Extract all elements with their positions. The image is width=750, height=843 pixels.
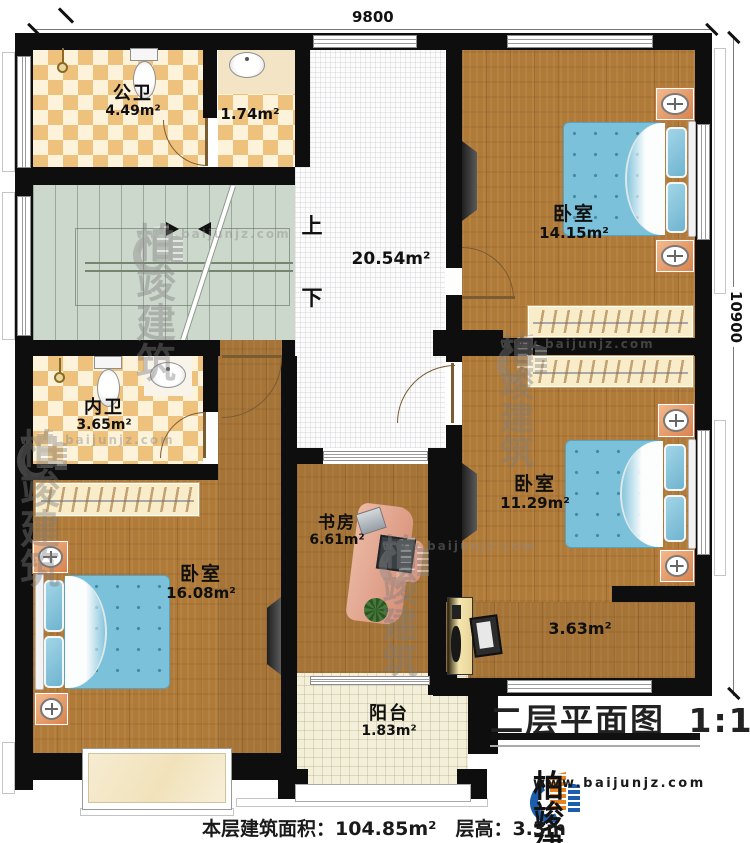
room-name: 书房 <box>309 514 364 533</box>
dimension-line-right <box>733 36 734 696</box>
watermark-name: 柏竣建筑 <box>500 334 538 470</box>
toilet-icon <box>130 48 158 61</box>
room-label-bedroom-right: 卧室 11.29m² <box>500 474 570 512</box>
room-label-public-bath: 公卫 4.49m² <box>105 84 160 120</box>
stairs-down-label: 下 <box>302 282 323 312</box>
dimension-line-top <box>33 29 712 30</box>
dimension-width-label: 9800 <box>348 8 398 26</box>
wall <box>612 586 695 602</box>
watermark-name: 柏竣建筑 <box>382 536 422 680</box>
watermark-url: www.baijunjz.com <box>136 227 291 241</box>
stairs-up-label: 上 <box>302 210 323 240</box>
window-sill <box>2 52 15 172</box>
nightstand <box>660 550 694 582</box>
wall <box>33 167 295 185</box>
room-label-bedroom-left: 卧室 16.08m² <box>166 564 236 602</box>
bed-pillow <box>664 495 686 542</box>
bed-headboard <box>688 439 696 549</box>
room-label-wash: 1.74m² <box>220 106 279 123</box>
room-label-hall: 20.54m² <box>352 250 431 269</box>
room-name: 卧室 <box>539 204 609 225</box>
window <box>507 680 652 693</box>
bed-pillow <box>666 127 687 178</box>
nightstand <box>656 88 694 120</box>
bay-window-seat <box>88 753 226 803</box>
window <box>697 124 710 240</box>
ceiling-light-icon <box>57 62 68 73</box>
door-leaf <box>205 118 208 166</box>
bed-headboard <box>688 121 696 237</box>
wardrobe <box>528 356 693 387</box>
room-name: 公卫 <box>105 84 160 104</box>
dimension-tick <box>727 31 740 44</box>
room-label-study: 书房 6.61m² <box>309 514 364 549</box>
title-underline-thin <box>490 745 700 747</box>
dimension-tick <box>58 7 74 23</box>
door-leaf <box>222 355 282 358</box>
window <box>313 35 417 48</box>
nightstand <box>658 404 694 437</box>
room-label-corridor: 3.63m² <box>548 620 611 638</box>
room-area: 1.74m² <box>220 106 279 123</box>
wardrobe <box>528 306 693 337</box>
speaker-icon <box>451 626 461 662</box>
stair-rail <box>85 262 293 272</box>
toilet-icon <box>94 356 122 369</box>
room-name: 卧室 <box>166 564 236 585</box>
watermark-name: 柏竣建筑 <box>136 224 180 384</box>
room-area: 3.65m² <box>76 418 131 434</box>
watermark-name: 柏竣建筑 <box>20 430 64 590</box>
wall <box>297 448 323 464</box>
window <box>697 430 710 555</box>
tv-icon <box>462 141 477 221</box>
window <box>17 56 31 168</box>
room-area: 14.15m² <box>539 225 609 242</box>
bed-pillow <box>664 444 686 491</box>
room-name: 阳台 <box>361 704 416 724</box>
wall <box>15 753 86 780</box>
room-area: 16.08m² <box>166 585 236 602</box>
title-underline-thick <box>490 733 700 740</box>
dimension-height-label: 10900 <box>727 287 745 347</box>
room-area: 20.54m² <box>352 250 431 269</box>
window-sill <box>714 48 726 294</box>
door-leaf <box>462 296 515 299</box>
window-sill <box>2 742 15 794</box>
room-label-balcony: 阳台 1.83m² <box>361 704 416 740</box>
wall <box>295 50 310 167</box>
wall <box>15 340 220 356</box>
room-area: 4.49m² <box>105 104 160 120</box>
room-area: 11.29m² <box>500 495 570 512</box>
watermark-url: www.baijunjz.com <box>20 433 175 447</box>
wall <box>203 356 218 412</box>
nightstand <box>656 240 694 272</box>
room-label-bedroom-top: 卧室 14.15m² <box>539 204 609 242</box>
watermark-url: www.baijunjz.com <box>382 539 537 553</box>
wall <box>281 356 297 771</box>
wall <box>446 425 462 602</box>
room-name: 卧室 <box>500 474 570 495</box>
floor-info: 本层建筑面积：104.85m² 层高：3.3m <box>202 814 566 841</box>
room-name: 内卫 <box>76 398 131 418</box>
ceiling-light-icon <box>54 372 65 383</box>
room-area: 6.61m² <box>309 533 364 549</box>
bed-pillow <box>44 636 64 688</box>
opening <box>323 451 428 461</box>
wall <box>432 672 457 692</box>
door-leaf <box>451 363 454 423</box>
nightstand <box>35 693 68 725</box>
wall <box>446 33 462 268</box>
window-sill <box>714 420 726 576</box>
window <box>507 35 653 48</box>
floor-plan: 公卫 4.49m² 1.74m² 20.54m² 上 下 卧室 14.15m² … <box>0 0 750 843</box>
window-sill <box>2 192 15 340</box>
room-label-inner-bath: 内卫 3.65m² <box>76 398 131 434</box>
tv-icon <box>462 463 477 541</box>
audio-component-icon <box>452 605 461 619</box>
wall <box>282 340 295 356</box>
tv-icon <box>267 597 281 675</box>
bed-pillow <box>666 182 687 233</box>
sink-icon <box>229 52 265 78</box>
wall <box>203 50 217 118</box>
room-area: 3.63m² <box>548 620 611 638</box>
door-leaf <box>203 412 206 458</box>
brand-url: www.baijunjz.com <box>533 776 706 791</box>
room-area: 1.83m² <box>361 724 416 740</box>
balcony-railing <box>295 784 471 802</box>
watermark-url: www.baijunjz.com <box>500 337 655 351</box>
wall <box>433 330 503 356</box>
window <box>17 196 31 336</box>
